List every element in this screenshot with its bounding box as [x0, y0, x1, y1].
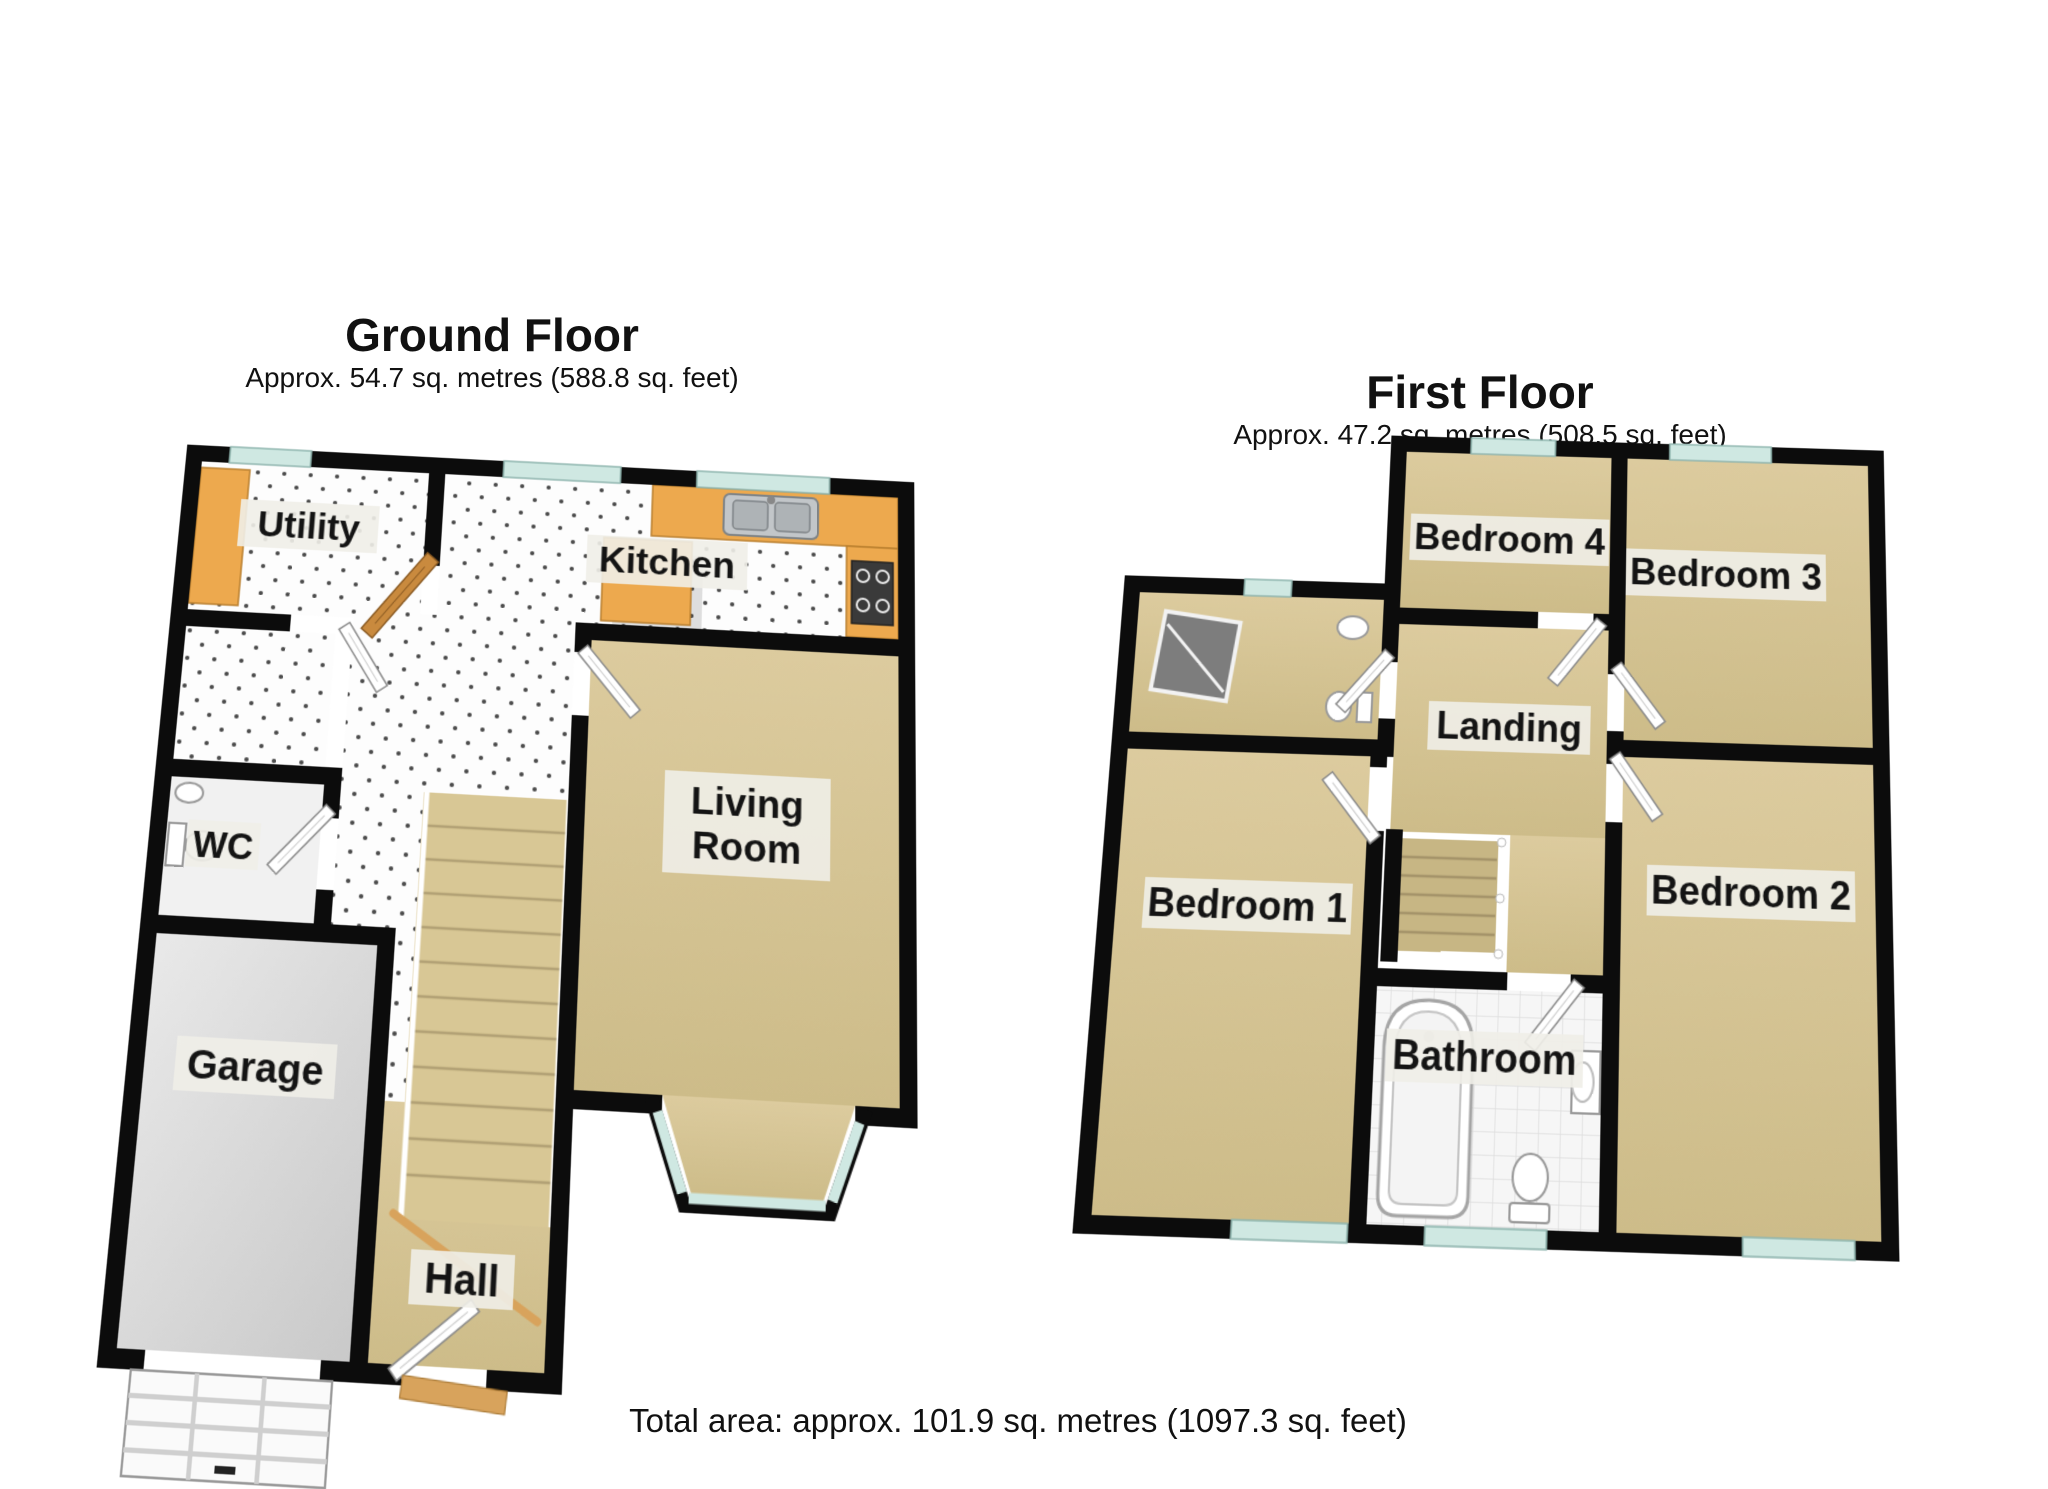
svg-text:Landing: Landing	[1436, 704, 1583, 751]
svg-text:Living: Living	[690, 778, 804, 829]
first-floor-plan: Bedroom 4 Bedroom 3 Landing Bedroom 1 Be…	[1013, 413, 1916, 1412]
toilet	[1509, 1153, 1550, 1223]
garage-floor	[117, 933, 377, 1362]
stairwell	[1393, 835, 1506, 959]
room-label-wc: WC	[185, 819, 262, 870]
room-label-bedroom2: Bedroom 2	[1647, 865, 1856, 923]
svg-text:Hall: Hall	[423, 1252, 500, 1307]
garage-door	[121, 1370, 332, 1489]
bedroom4-window	[1471, 438, 1556, 456]
landing-floor-lower	[1506, 835, 1605, 975]
staircase	[397, 792, 572, 1227]
bathroom-window	[1424, 1226, 1546, 1249]
room-label-bedroom1: Bedroom 1	[1142, 877, 1353, 935]
svg-text:Bedroom 2: Bedroom 2	[1651, 868, 1851, 919]
room-label-bedroom4: Bedroom 4	[1409, 514, 1609, 567]
ensuite-window	[1244, 579, 1292, 597]
stove	[851, 561, 893, 626]
kitchen-sink	[723, 494, 818, 540]
room-label-bedroom3: Bedroom 3	[1626, 548, 1827, 601]
room-label-living-room: Living Room	[662, 770, 831, 881]
lobby-floor	[173, 626, 335, 767]
room-label-utility: Utility	[237, 499, 380, 553]
svg-text:Utility: Utility	[256, 503, 362, 550]
shower	[1150, 611, 1241, 701]
svg-text:Kitchen: Kitchen	[598, 538, 735, 587]
ground-floor-plan: Utility Kitchen WC Garage Hall Living Ro…	[0, 327, 969, 1489]
total-area-text: Total area: approx. 101.9 sq. metres (10…	[629, 1402, 1407, 1440]
room-label-bathroom: Bathroom	[1385, 1028, 1584, 1087]
svg-text:Room: Room	[691, 822, 801, 873]
bay-window-floor	[660, 1095, 856, 1203]
room-label-kitchen: Kitchen	[586, 535, 748, 591]
bedroom3-window	[1670, 444, 1772, 463]
bedroom1-window	[1230, 1220, 1347, 1243]
svg-text:Bathroom: Bathroom	[1391, 1032, 1577, 1085]
svg-text:Bedroom 1: Bedroom 1	[1146, 880, 1348, 931]
wc-basin	[175, 782, 204, 803]
utility-window	[229, 447, 311, 467]
svg-text:WC: WC	[191, 824, 255, 869]
ensuite-basin	[1337, 616, 1369, 640]
bedroom1-floor	[1092, 748, 1371, 1223]
svg-text:Garage: Garage	[185, 1039, 325, 1095]
first-floor-title: First Floor	[1366, 365, 1593, 419]
bedroom2-window	[1743, 1237, 1855, 1260]
room-label-garage: Garage	[173, 1036, 338, 1100]
svg-text:Bedroom 3: Bedroom 3	[1630, 551, 1822, 598]
bedroom3-floor	[1624, 459, 1873, 748]
room-label-hall: Hall	[408, 1249, 515, 1310]
floorplan-page: Ground Floor Approx. 54.7 sq. metres (58…	[0, 0, 2048, 1489]
bedroom2-floor	[1616, 757, 1881, 1242]
svg-text:Bedroom 4: Bedroom 4	[1413, 516, 1605, 563]
room-label-landing: Landing	[1427, 701, 1591, 755]
